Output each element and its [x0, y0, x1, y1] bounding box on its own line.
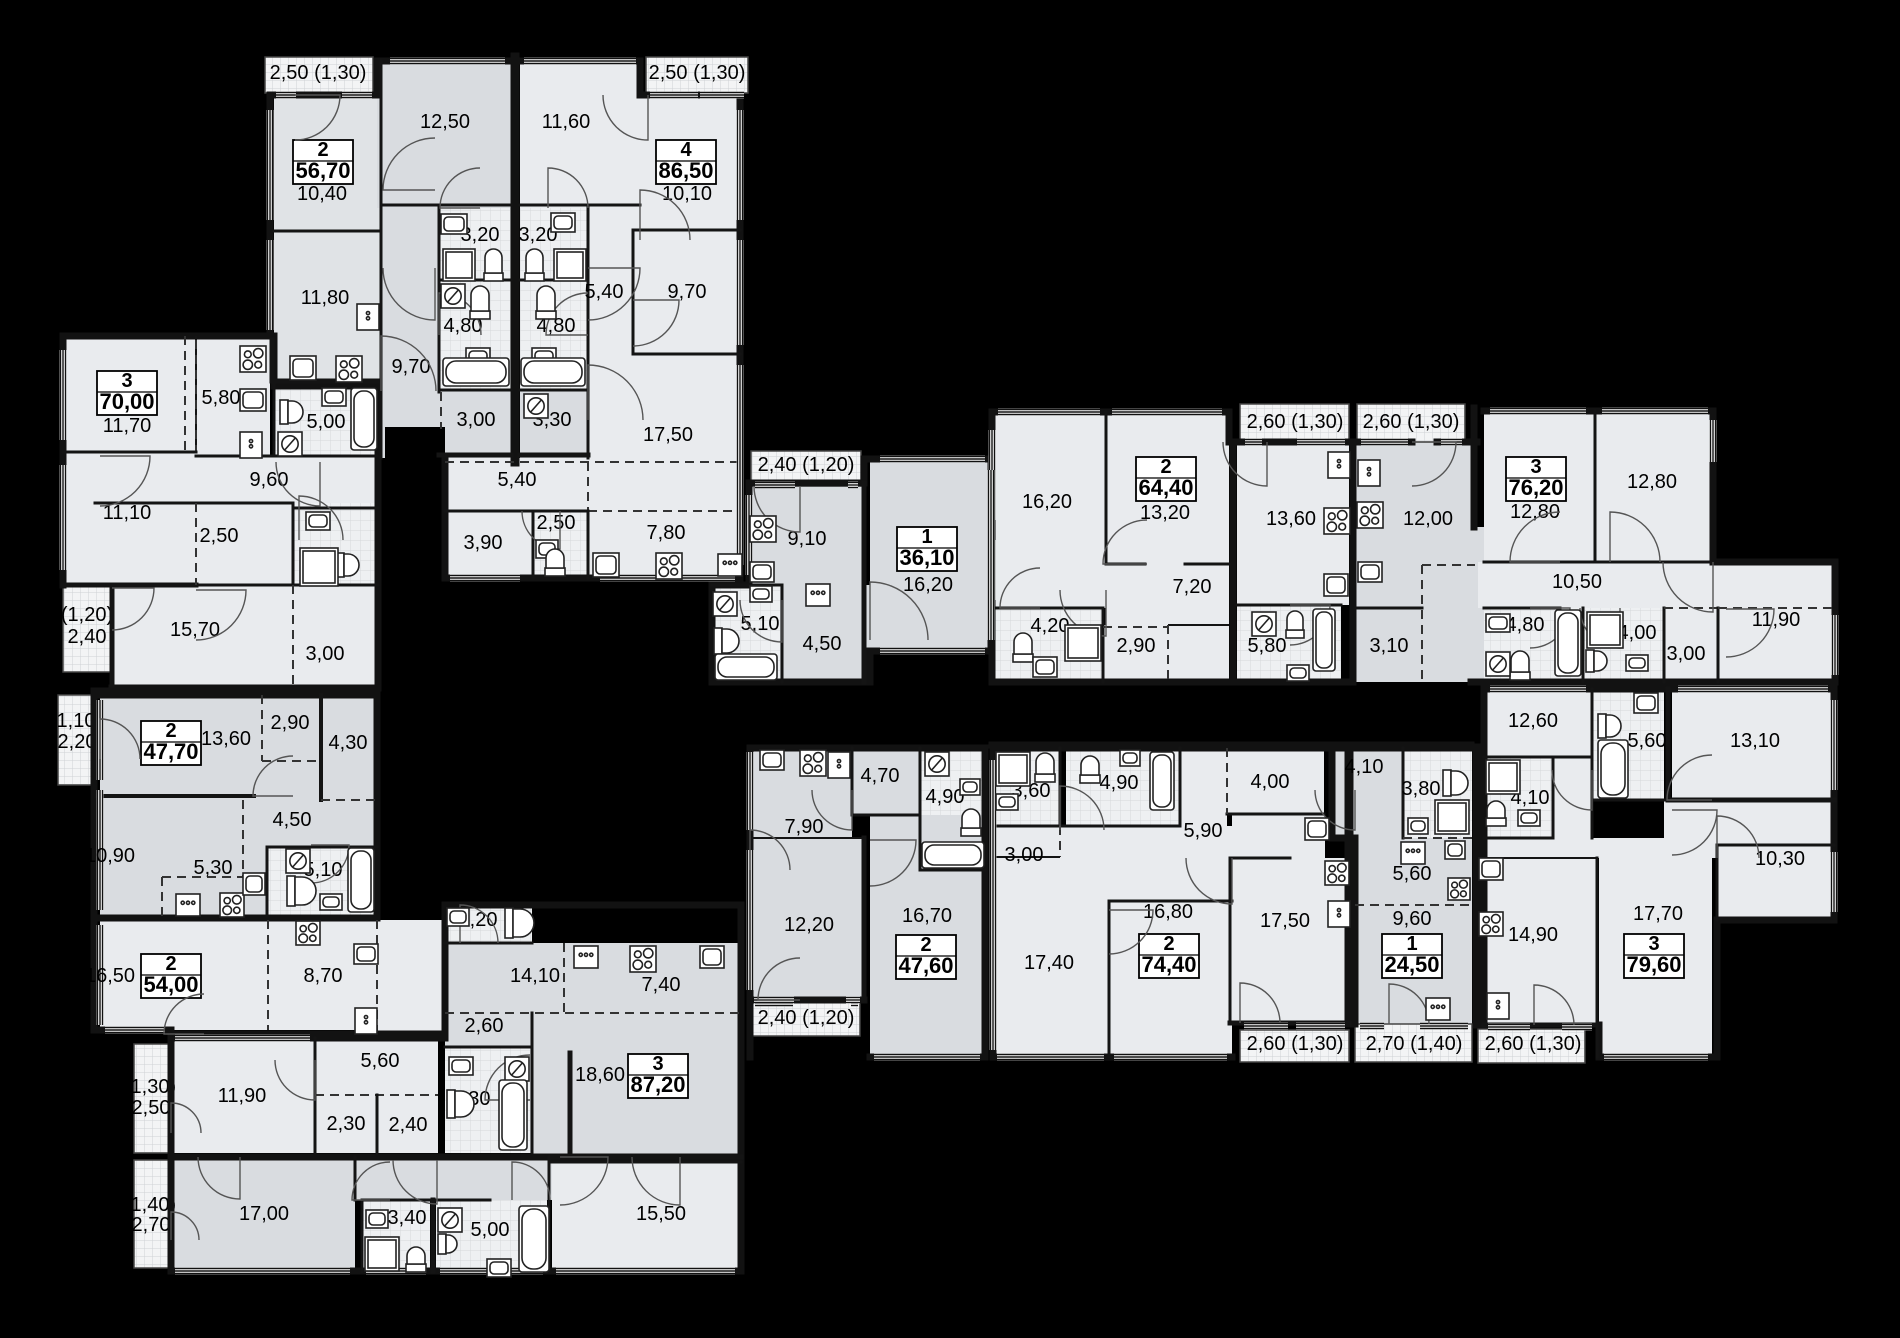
svg-text:54,00: 54,00	[143, 972, 198, 997]
svg-text:16,20: 16,20	[903, 574, 953, 596]
svg-text:4,90: 4,90	[926, 786, 965, 808]
svg-text:7,20: 7,20	[1173, 576, 1212, 598]
svg-text:16,80: 16,80	[1143, 901, 1193, 923]
svg-text:13,10: 13,10	[1730, 730, 1780, 752]
svg-text:2,30: 2,30	[327, 1113, 366, 1135]
svg-text:64,40: 64,40	[1138, 475, 1193, 500]
svg-text:14,90: 14,90	[1508, 924, 1558, 946]
svg-text:9,70: 9,70	[392, 356, 431, 378]
svg-text:56,70: 56,70	[295, 158, 350, 183]
svg-text:3,00: 3,00	[1005, 844, 1044, 866]
svg-text:87,20: 87,20	[630, 1072, 685, 1097]
svg-text:4,00: 4,00	[1251, 771, 1290, 793]
svg-text:5,40: 5,40	[498, 469, 537, 491]
svg-text:36,10: 36,10	[899, 545, 954, 570]
svg-text:2,40: 2,40	[389, 1114, 428, 1136]
svg-text:5,60: 5,60	[1393, 863, 1432, 885]
svg-text:4,30: 4,30	[329, 732, 368, 754]
svg-text:17,50: 17,50	[643, 424, 693, 446]
svg-text:2,50 (1,30): 2,50 (1,30)	[649, 62, 746, 84]
svg-text:3,80: 3,80	[1402, 778, 1441, 800]
svg-text:9,60: 9,60	[250, 469, 289, 491]
svg-text:13,60: 13,60	[1266, 508, 1316, 530]
svg-text:5,90: 5,90	[1184, 820, 1223, 842]
svg-text:47,60: 47,60	[898, 953, 953, 978]
svg-text:8,70: 8,70	[304, 965, 343, 987]
svg-text:18,60: 18,60	[575, 1064, 625, 1086]
svg-text:4,20: 4,20	[1031, 615, 1070, 637]
svg-text:3,00: 3,00	[457, 409, 496, 431]
svg-text:12,00: 12,00	[1403, 508, 1453, 530]
svg-text:2,60: 2,60	[465, 1015, 504, 1037]
svg-text:2,60 (1,30): 2,60 (1,30)	[1247, 1033, 1344, 1055]
svg-text:4,50: 4,50	[273, 809, 312, 831]
svg-text:17,00: 17,00	[239, 1203, 289, 1225]
svg-text:15,50: 15,50	[636, 1203, 686, 1225]
svg-text:14,10: 14,10	[510, 965, 560, 987]
svg-text:13,60: 13,60	[201, 728, 251, 750]
svg-text:7,40: 7,40	[642, 974, 681, 996]
svg-text:10,10: 10,10	[662, 183, 712, 205]
svg-text:11,90: 11,90	[1752, 609, 1801, 631]
svg-text:2,60 (1,30): 2,60 (1,30)	[1485, 1033, 1582, 1055]
svg-text:12,20: 12,20	[784, 914, 834, 936]
svg-text:2,60 (1,30): 2,60 (1,30)	[1363, 411, 1460, 433]
svg-text:11,70: 11,70	[103, 415, 152, 437]
svg-text:3,00: 3,00	[1667, 643, 1706, 665]
svg-text:10,50: 10,50	[1552, 571, 1602, 593]
svg-text:13,20: 13,20	[1140, 502, 1190, 524]
svg-text:10,90: 10,90	[85, 845, 135, 867]
svg-text:4,10: 4,10	[1345, 756, 1384, 778]
svg-text:2,40 (1,20): 2,40 (1,20)	[758, 1007, 855, 1029]
svg-text:10,40: 10,40	[297, 183, 347, 205]
svg-text:3,90: 3,90	[464, 532, 503, 554]
svg-text:12,50: 12,50	[420, 111, 470, 133]
svg-text:2,70 (1,40): 2,70 (1,40)	[1366, 1033, 1463, 1055]
svg-text:2,60 (1,30): 2,60 (1,30)	[1247, 411, 1344, 433]
svg-text:9,60: 9,60	[1393, 908, 1432, 930]
svg-text:16,20: 16,20	[1022, 491, 1072, 513]
svg-text:2,50: 2,50	[132, 1097, 171, 1119]
svg-text:5,10: 5,10	[741, 613, 780, 635]
svg-text:5,30: 5,30	[194, 857, 233, 879]
svg-text:3,40: 3,40	[388, 1207, 427, 1229]
svg-text:74,40: 74,40	[1141, 952, 1196, 977]
svg-text:5,60: 5,60	[1628, 730, 1667, 752]
svg-text:16,50: 16,50	[85, 965, 135, 987]
svg-text:86,50: 86,50	[658, 158, 713, 183]
svg-text:12,60: 12,60	[1508, 710, 1558, 732]
svg-text:17,70: 17,70	[1633, 903, 1683, 925]
svg-text:2,40 (1,20): 2,40 (1,20)	[758, 454, 855, 476]
svg-text:16,70: 16,70	[902, 905, 952, 927]
svg-text:2,40: 2,40	[68, 626, 107, 648]
svg-text:4,90: 4,90	[1100, 772, 1139, 794]
svg-text:76,20: 76,20	[1508, 475, 1563, 500]
svg-text:17,50: 17,50	[1260, 910, 1310, 932]
svg-text:4,80: 4,80	[1506, 614, 1545, 636]
svg-text:4,70: 4,70	[861, 765, 900, 787]
svg-text:2,50 (1,30): 2,50 (1,30)	[270, 62, 367, 84]
svg-text:5,80: 5,80	[1248, 635, 1287, 657]
svg-text:11,80: 11,80	[301, 287, 350, 309]
svg-text:24,50: 24,50	[1384, 952, 1439, 977]
svg-text:10,30: 10,30	[1755, 848, 1805, 870]
svg-text:2,50: 2,50	[200, 525, 239, 547]
svg-text:5,00: 5,00	[307, 411, 346, 433]
svg-text:5,40: 5,40	[585, 281, 624, 303]
svg-text:47,70: 47,70	[143, 739, 198, 764]
svg-text:7,80: 7,80	[647, 522, 686, 544]
svg-text:12,80: 12,80	[1627, 471, 1677, 493]
svg-text:3,00: 3,00	[306, 643, 345, 665]
svg-text:2,70: 2,70	[132, 1214, 171, 1236]
svg-text:11,60: 11,60	[542, 111, 591, 133]
svg-text:4,50: 4,50	[803, 633, 842, 655]
svg-text:2,90: 2,90	[271, 712, 310, 734]
svg-text:7,90: 7,90	[785, 816, 824, 838]
svg-text:5,00: 5,00	[471, 1219, 510, 1241]
svg-text:11,90: 11,90	[218, 1085, 267, 1107]
svg-text:2,50: 2,50	[537, 512, 576, 534]
svg-text:17,40: 17,40	[1024, 952, 1074, 974]
svg-text:3,10: 3,10	[1370, 635, 1409, 657]
svg-text:79,60: 79,60	[1626, 952, 1681, 977]
svg-text:5,60: 5,60	[361, 1050, 400, 1072]
svg-text:(1,20): (1,20)	[61, 604, 113, 626]
svg-text:70,00: 70,00	[99, 389, 154, 414]
svg-text:5,80: 5,80	[202, 387, 241, 409]
svg-text:2,90: 2,90	[1117, 635, 1156, 657]
